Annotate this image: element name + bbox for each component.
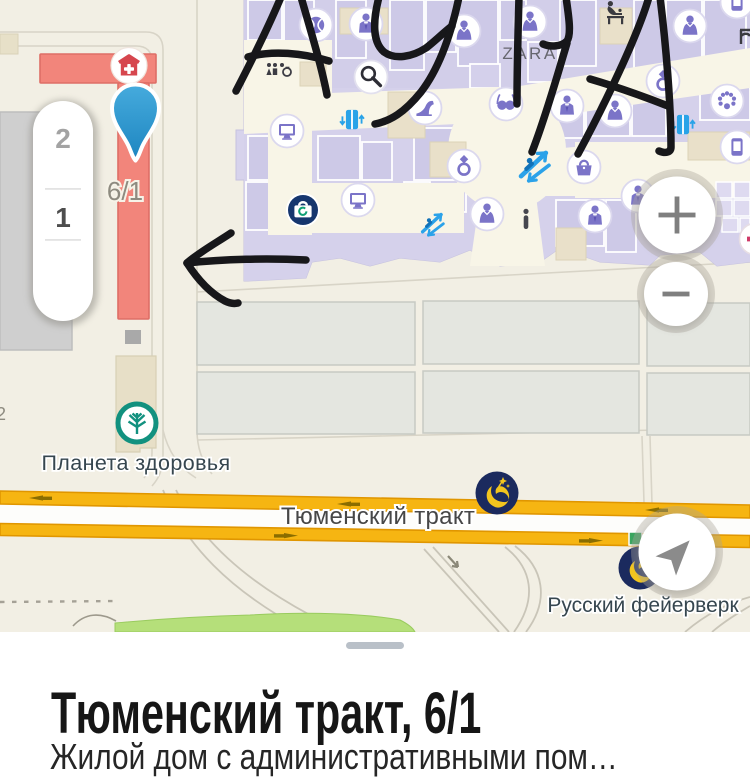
svg-text:Тюменский тракт: Тюменский тракт [281, 503, 475, 530]
svg-text:6/1: 6/1 [107, 176, 143, 206]
svg-text:2: 2 [0, 404, 6, 424]
svg-text:Русский фейерверк: Русский фейерверк [547, 594, 739, 617]
svg-text:Планета здоровья: Планета здоровья [41, 451, 230, 475]
svg-text:1: 1 [55, 202, 71, 233]
svg-text:2: 2 [55, 123, 71, 154]
